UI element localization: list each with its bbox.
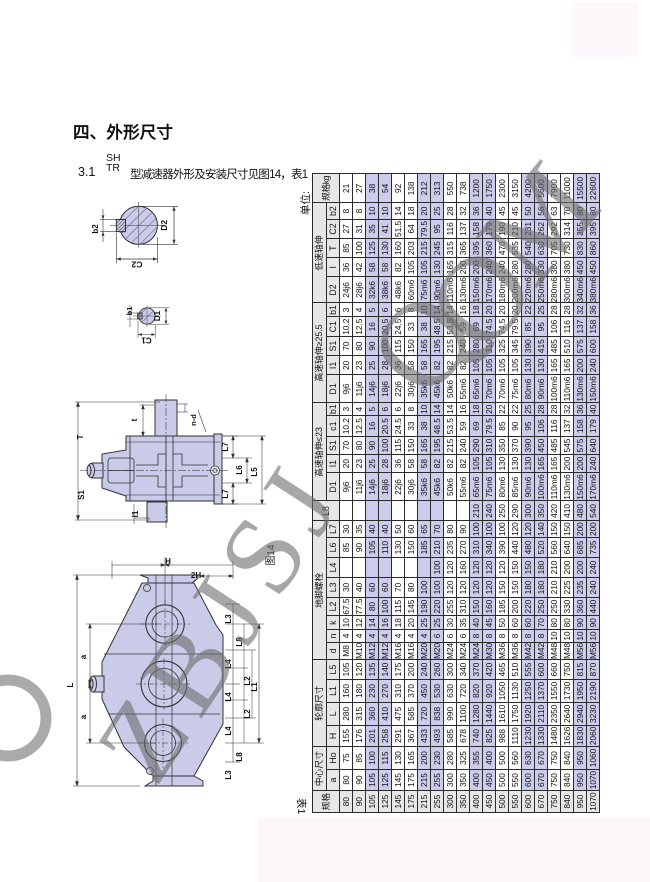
svg-text:D2: D2	[159, 220, 169, 231]
svg-text:H: H	[165, 557, 171, 566]
svg-text:D1: D1	[153, 310, 162, 321]
svg-text:t: t	[130, 418, 139, 421]
svg-text:L7: L7	[221, 442, 230, 452]
svg-text:T: T	[76, 434, 85, 439]
svg-text:L2: L2	[243, 709, 252, 719]
svg-text:L8: L8	[235, 752, 244, 762]
svg-text:C2: C2	[131, 260, 142, 270]
svg-text:n-d: n-d	[189, 414, 198, 426]
svg-text:S1: S1	[77, 490, 86, 500]
svg-text:a: a	[79, 654, 88, 659]
svg-text:b2: b2	[91, 224, 100, 234]
svg-text:I1: I1	[131, 510, 140, 517]
svg-text:C1: C1	[141, 336, 152, 345]
svg-text:L3: L3	[224, 770, 233, 780]
svg-text:b1: b1	[125, 307, 134, 316]
